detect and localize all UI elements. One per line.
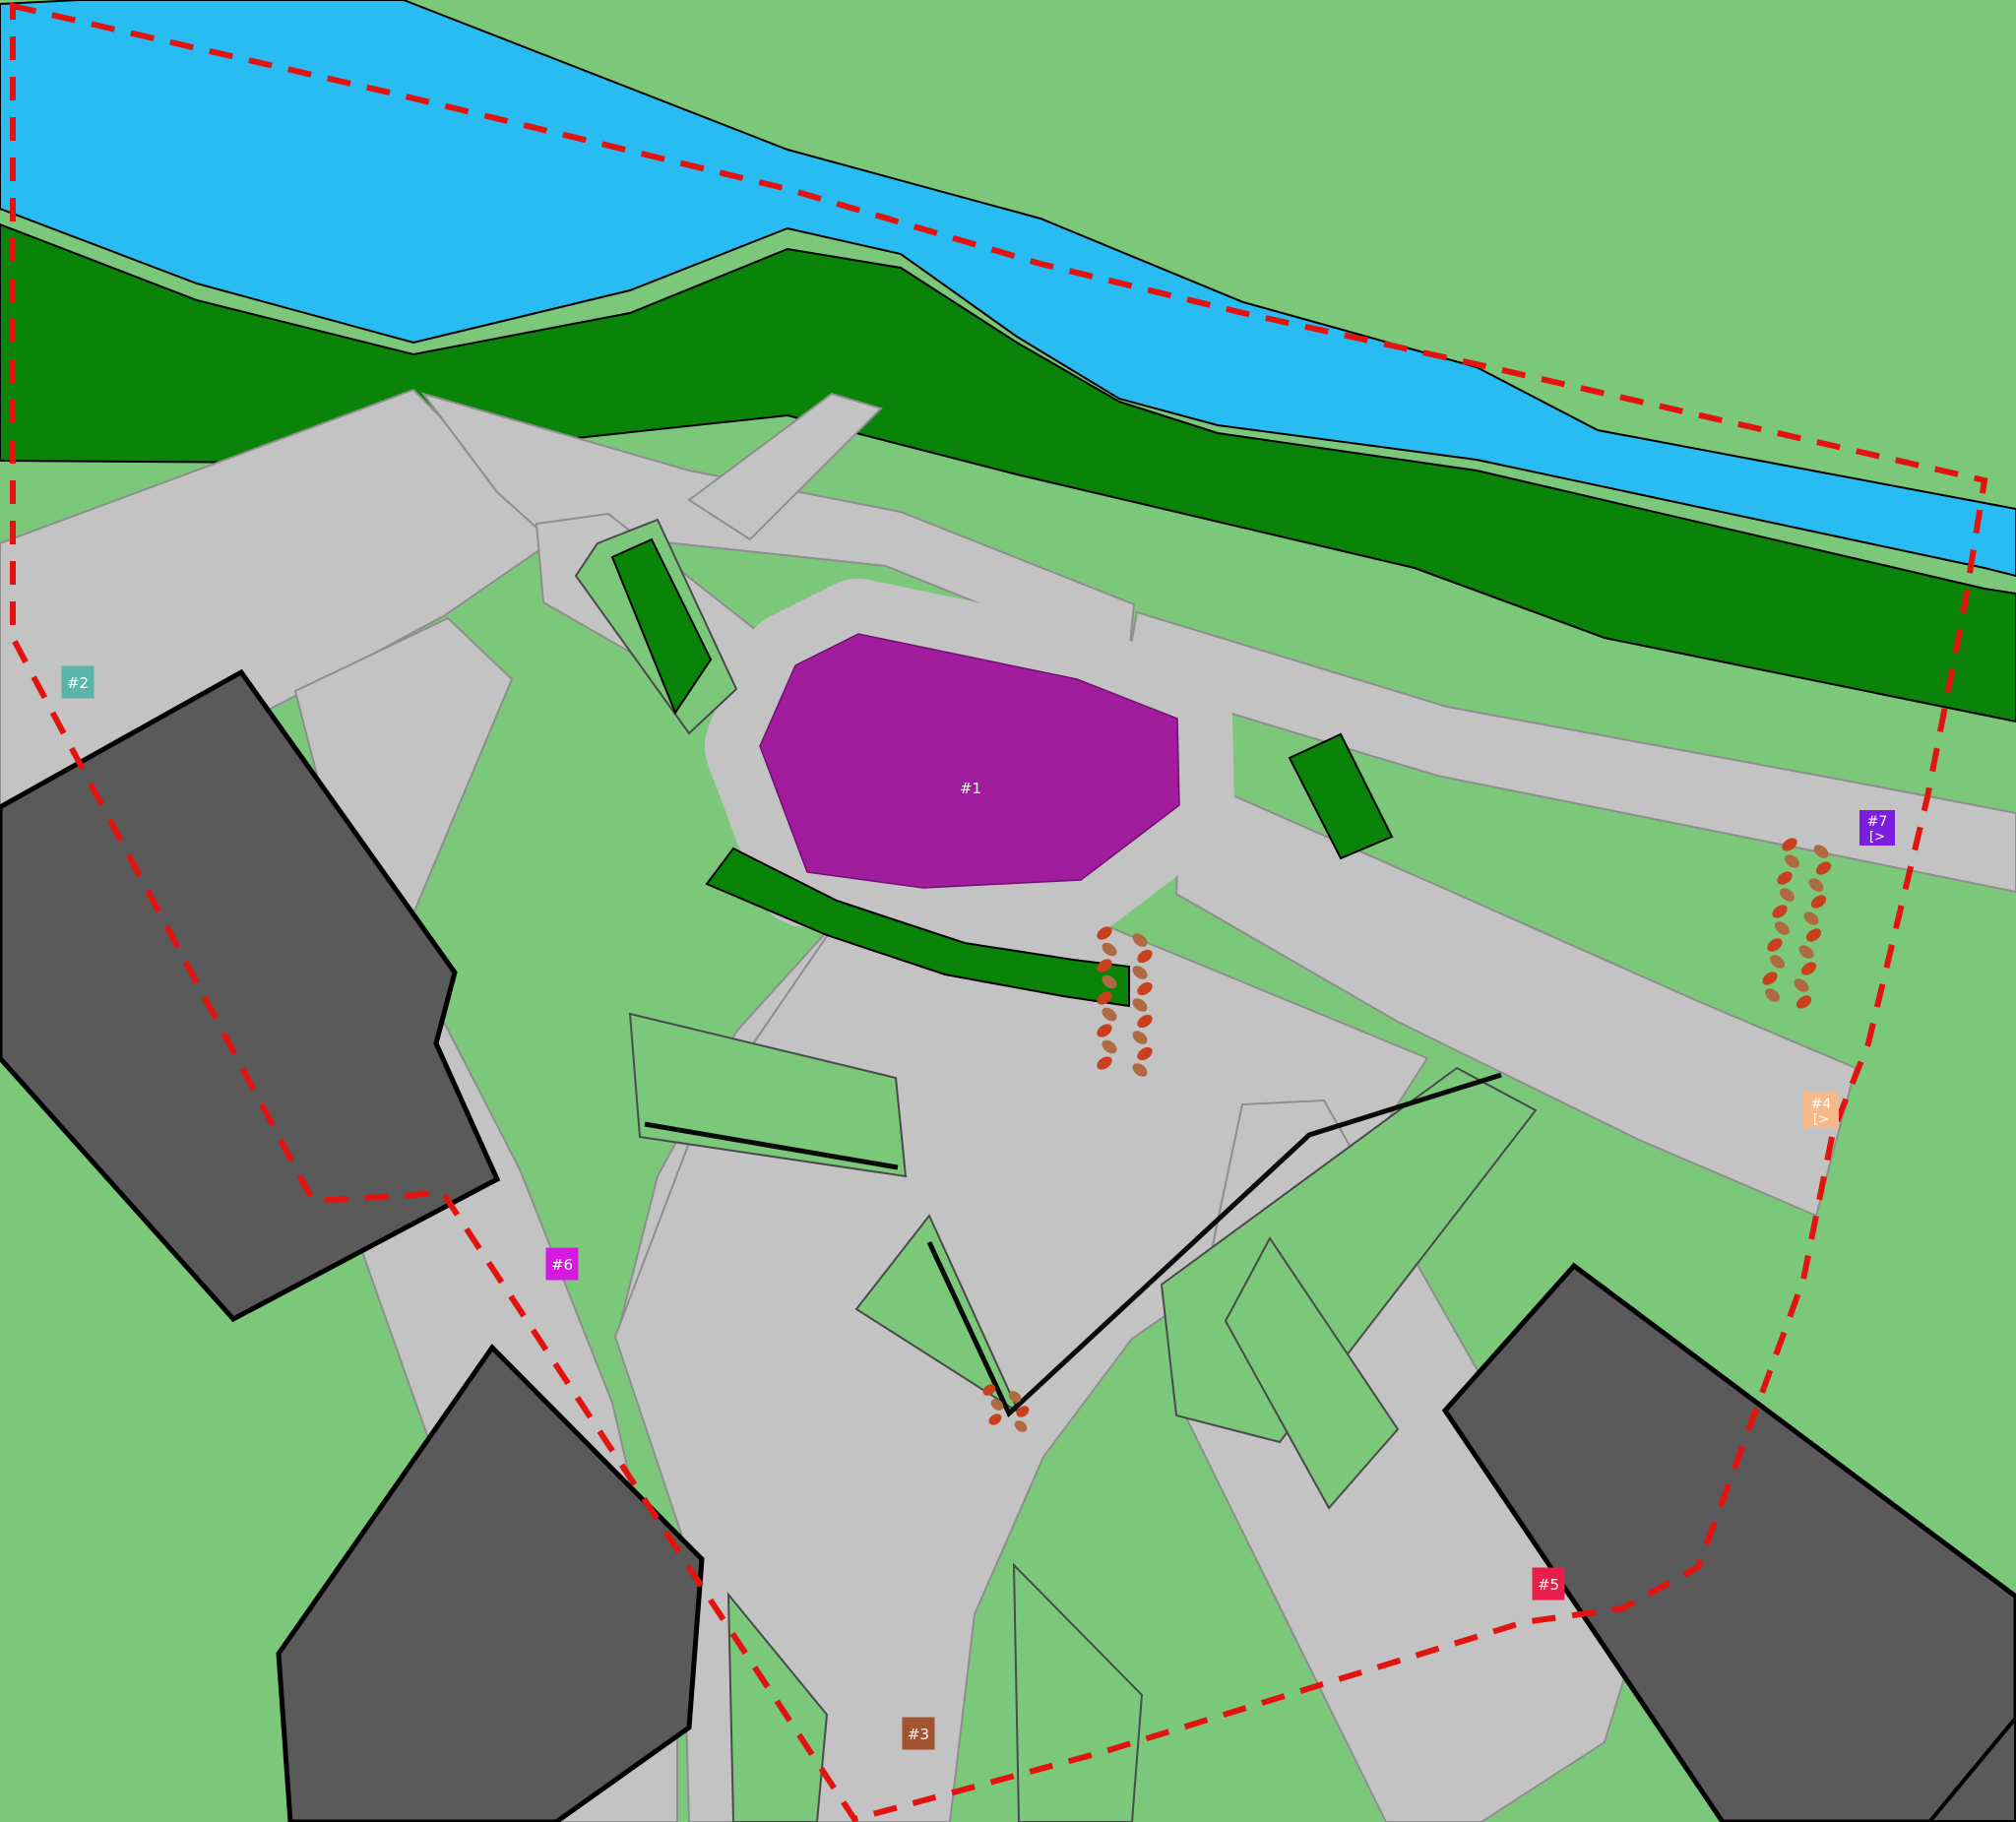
- marker-7-sublabel: [>: [1869, 830, 1885, 845]
- site-map-canvas[interactable]: #1#2#3#4[>#5#6#7[>: [0, 0, 2016, 1822]
- marker-4-sublabel: [>: [1813, 1112, 1829, 1127]
- map-viewport: #1#2#3#4[>#5#6#7[>: [0, 0, 2016, 1822]
- marker-2-label: #2: [67, 674, 89, 692]
- marker-6[interactable]: #6: [546, 1248, 579, 1281]
- marker-4[interactable]: #4[>: [1803, 1093, 1839, 1128]
- marker-2[interactable]: #2: [62, 666, 94, 699]
- marker-5[interactable]: #5: [1533, 1568, 1565, 1601]
- marker-3[interactable]: #3: [903, 1718, 935, 1750]
- marker-1-label: #1: [960, 780, 981, 797]
- marker-5-label: #5: [1538, 1576, 1559, 1594]
- marker-3-label: #3: [908, 1726, 929, 1743]
- marker-7[interactable]: #7[>: [1859, 810, 1895, 846]
- marker-4-label: #4: [1811, 1097, 1832, 1112]
- marker-6-label: #6: [551, 1256, 573, 1274]
- marker-1[interactable]: #1: [960, 780, 981, 797]
- marker-7-label: #7: [1867, 814, 1888, 830]
